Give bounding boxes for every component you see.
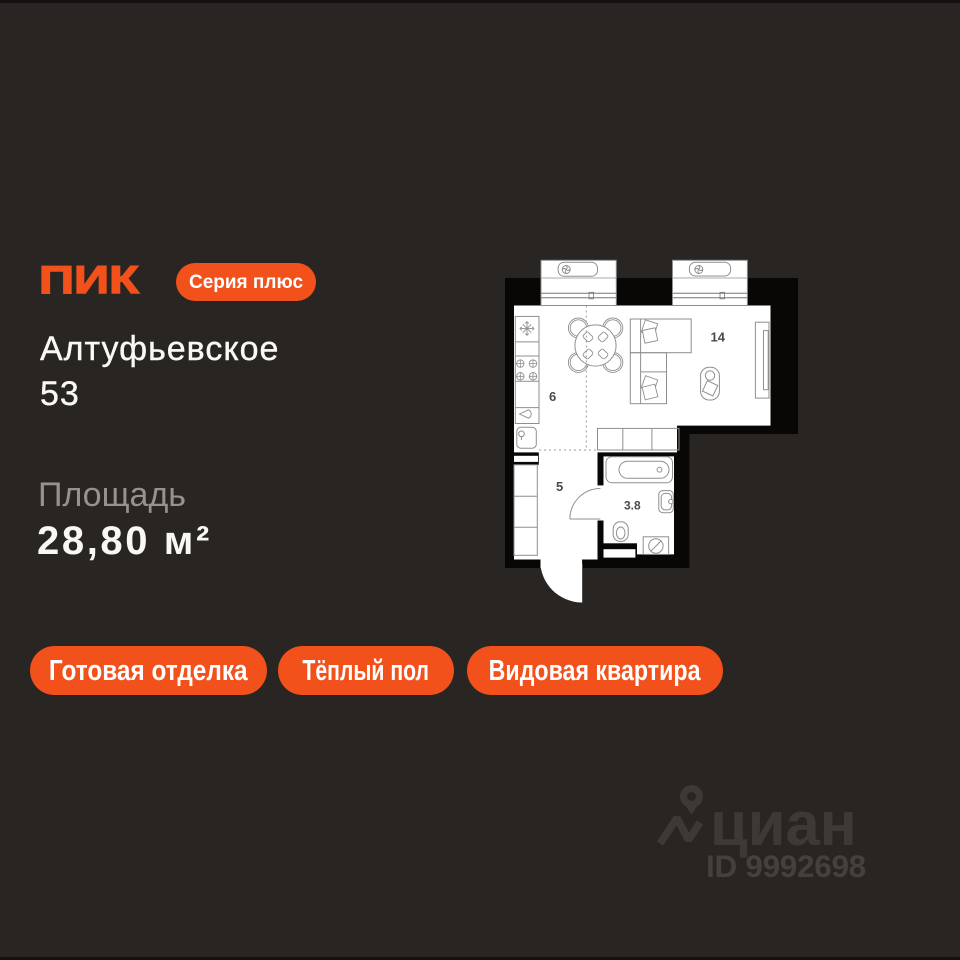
svg-text:5: 5 [556, 479, 563, 494]
svg-text:6: 6 [549, 389, 556, 404]
svg-text:3.8: 3.8 [624, 499, 641, 513]
svg-text:14: 14 [711, 330, 726, 345]
